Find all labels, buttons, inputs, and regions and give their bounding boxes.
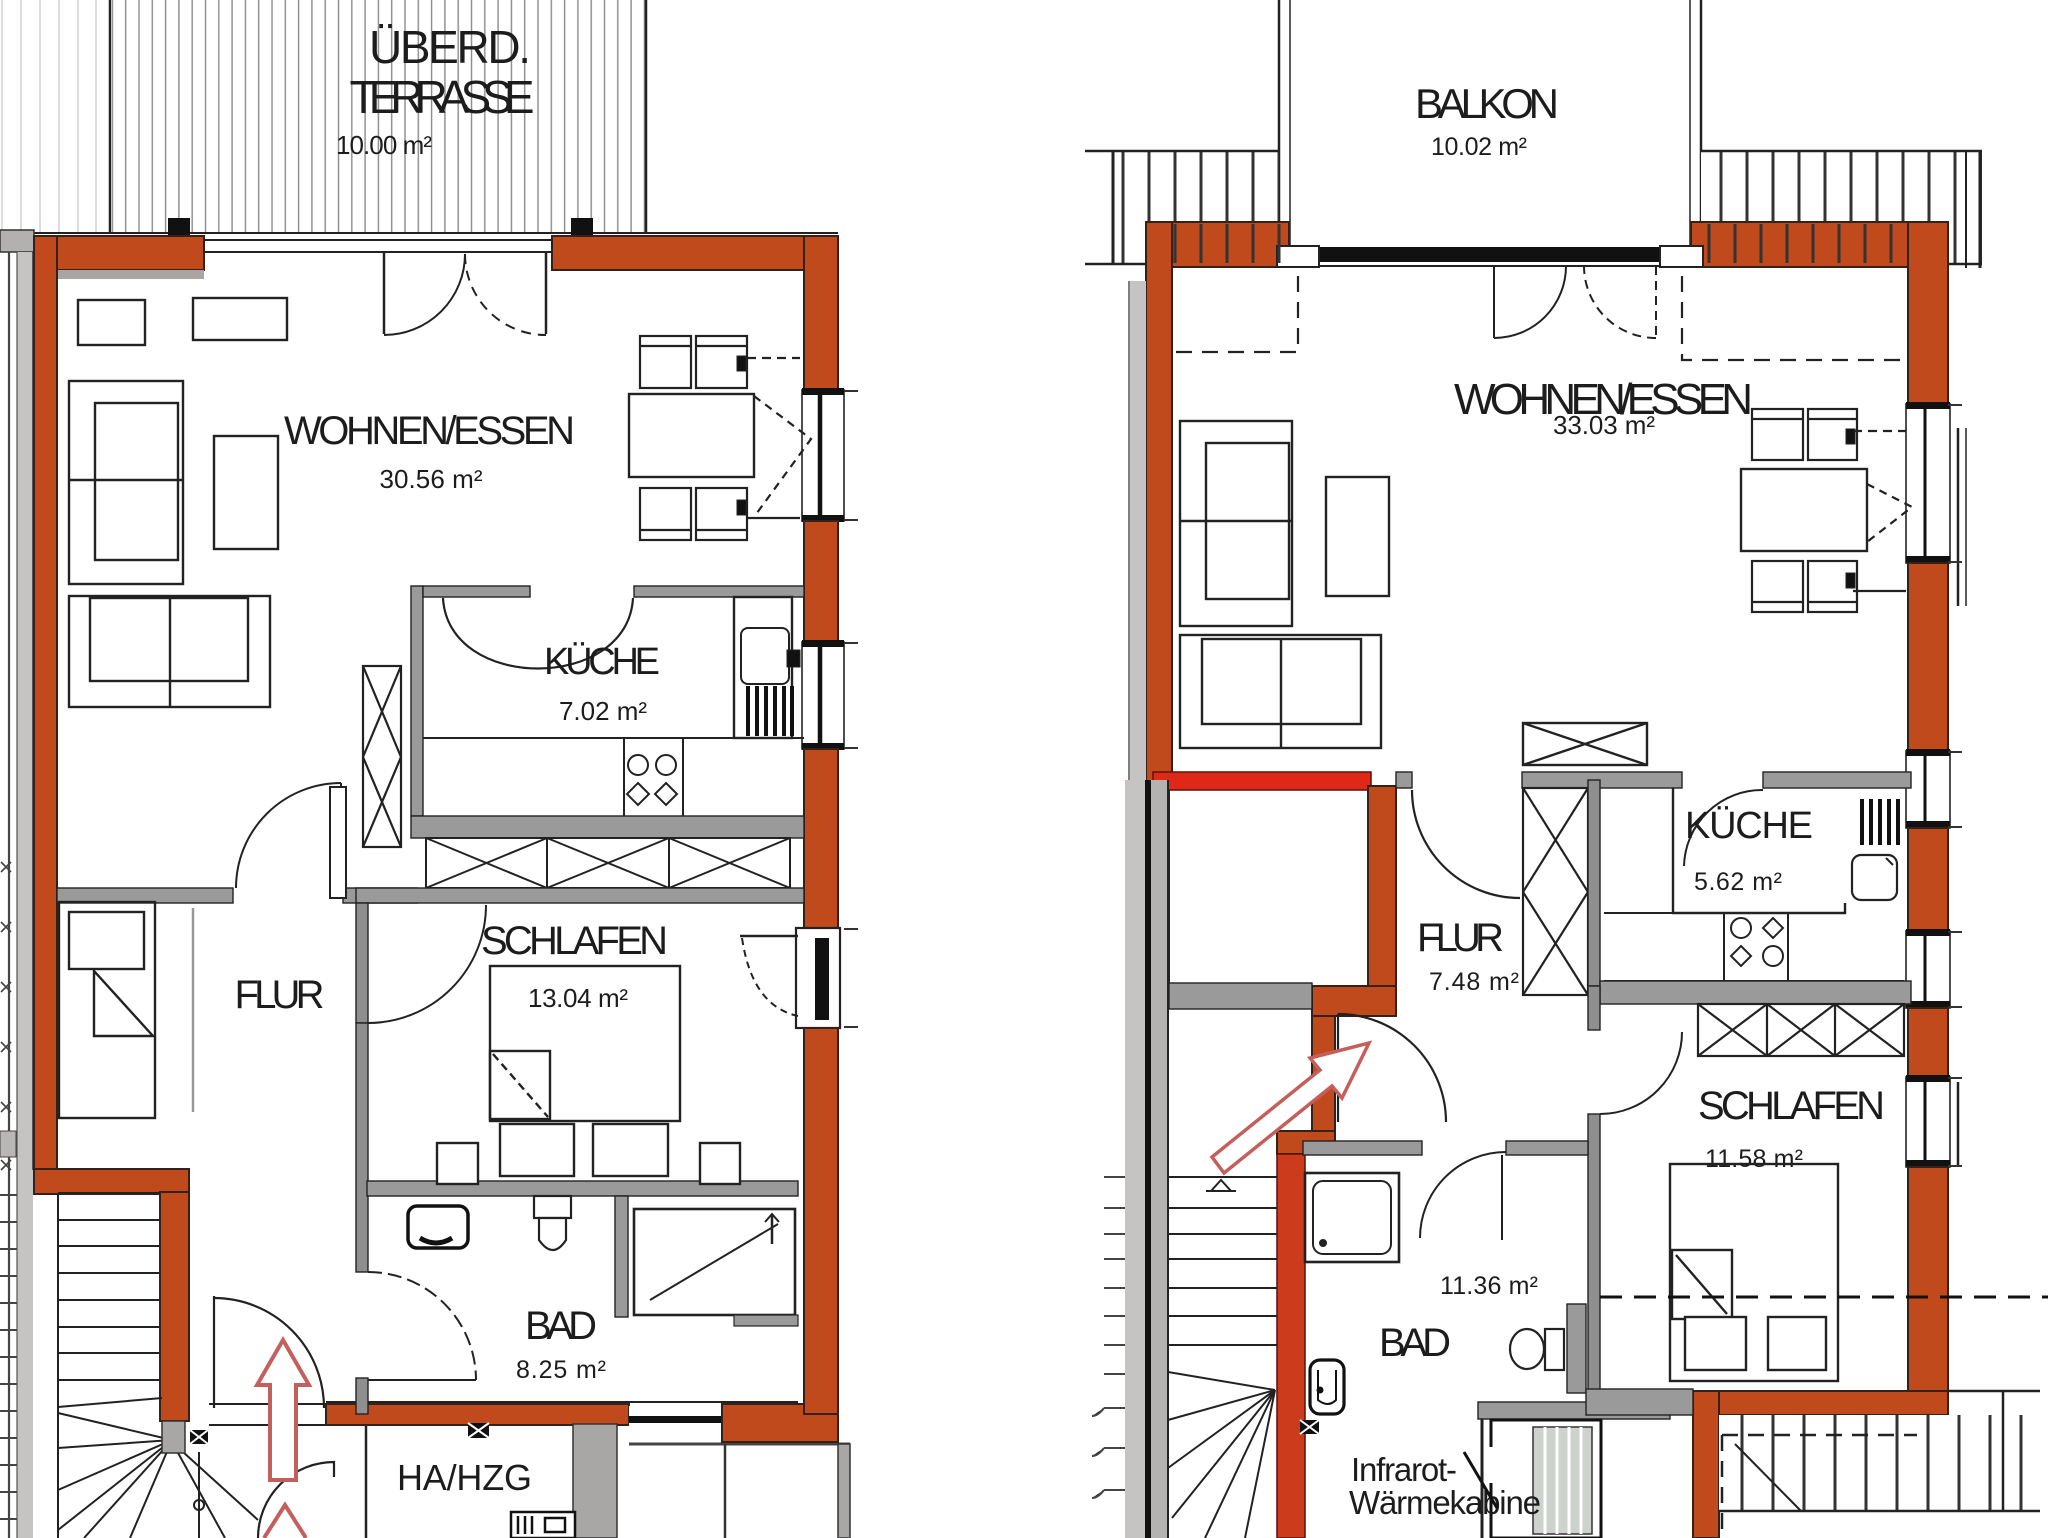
svg-text:Wärmekabine: Wärmekabine (1349, 1484, 1541, 1521)
svg-text:10.00 m²: 10.00 m² (336, 130, 432, 160)
svg-text:Infrarot-: Infrarot- (1351, 1451, 1457, 1488)
svg-text:5.62 m²: 5.62 m² (1694, 868, 1782, 896)
svg-text:33.03 m²: 33.03 m² (1553, 410, 1655, 440)
svg-text:HA/HZG: HA/HZG (397, 1457, 533, 1498)
svg-text:BAD: BAD (525, 1304, 599, 1348)
svg-text:KÜCHE: KÜCHE (544, 641, 662, 683)
svg-text:BAD: BAD (1379, 1321, 1453, 1365)
svg-text:13.04 m²: 13.04 m² (528, 983, 628, 1013)
svg-text:10.02 m²: 10.02 m² (1431, 133, 1527, 161)
svg-text:30.56 m²: 30.56 m² (380, 464, 483, 494)
svg-text:FLUR: FLUR (1417, 916, 1507, 960)
svg-text:SCHLAFEN: SCHLAFEN (1698, 1084, 1886, 1128)
svg-text:7.02 m²: 7.02 m² (559, 696, 647, 726)
svg-text:SCHLAFEN: SCHLAFEN (481, 919, 669, 963)
svg-text:WOHNEN/ESSEN: WOHNEN/ESSEN (284, 409, 576, 453)
svg-text:TERRASSE: TERRASSE (350, 71, 537, 123)
svg-text:FLUR: FLUR (235, 973, 328, 1017)
svg-text:11.36 m²: 11.36 m² (1440, 1272, 1538, 1300)
svg-text:ÜBERD.: ÜBERD. (369, 21, 533, 73)
svg-text:BALKON: BALKON (1415, 80, 1561, 127)
svg-text:11.58 m²: 11.58 m² (1705, 1145, 1803, 1173)
svg-text:7.48 m²: 7.48 m² (1429, 968, 1519, 996)
svg-text:KÜCHE: KÜCHE (1685, 805, 1815, 847)
svg-text:8.25 m²: 8.25 m² (516, 1356, 606, 1384)
